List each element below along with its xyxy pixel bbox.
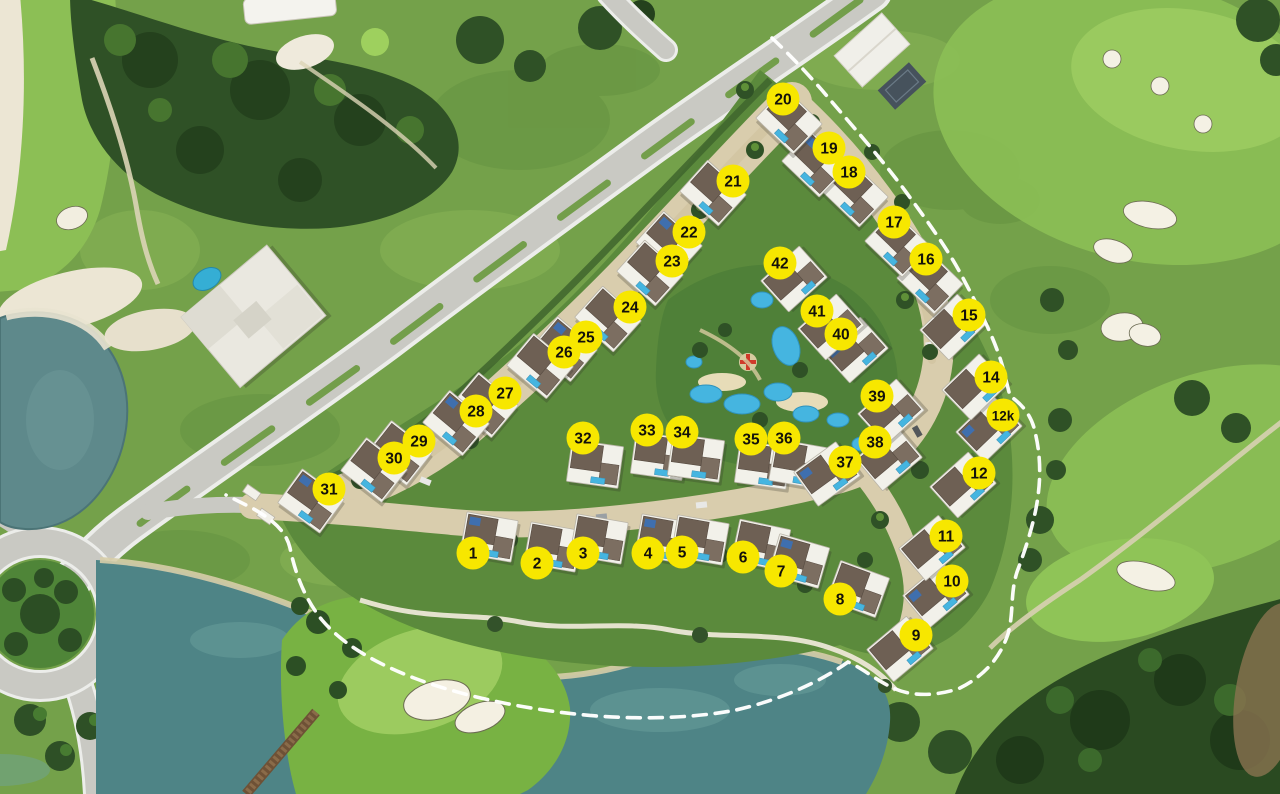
site-plan-stage: 12345678910111212k1415161718192021222324… (0, 0, 1280, 794)
lot-marker-27[interactable]: 27 (489, 377, 522, 410)
lot-marker-39[interactable]: 39 (861, 380, 894, 413)
lot-marker-2[interactable]: 2 (521, 547, 554, 580)
lot-marker-14[interactable]: 14 (975, 361, 1008, 394)
svg-text:32: 32 (574, 431, 591, 448)
svg-text:11: 11 (938, 529, 955, 546)
svg-text:6: 6 (739, 550, 748, 567)
svg-text:22: 22 (680, 225, 697, 242)
svg-text:34: 34 (673, 425, 691, 442)
svg-text:15: 15 (960, 308, 978, 325)
lot-marker-33[interactable]: 33 (631, 414, 664, 447)
svg-text:4: 4 (644, 546, 653, 563)
svg-text:12k: 12k (992, 409, 1015, 424)
svg-text:1: 1 (469, 546, 478, 563)
lot-marker-20[interactable]: 20 (767, 83, 800, 116)
lot-marker-37[interactable]: 37 (829, 446, 862, 479)
lot-marker-34[interactable]: 34 (666, 416, 699, 449)
lot-marker-12[interactable]: 12 (963, 457, 996, 490)
svg-text:33: 33 (638, 423, 656, 440)
svg-text:19: 19 (820, 141, 838, 158)
lot-marker-38[interactable]: 38 (859, 426, 892, 459)
svg-text:25: 25 (577, 330, 595, 347)
svg-text:31: 31 (320, 482, 338, 499)
svg-text:39: 39 (868, 389, 886, 406)
svg-text:7: 7 (777, 564, 786, 581)
svg-text:37: 37 (836, 455, 853, 472)
svg-text:23: 23 (663, 254, 681, 271)
lot-marker-6[interactable]: 6 (727, 541, 760, 574)
lot-marker-3[interactable]: 3 (567, 537, 600, 570)
svg-text:10: 10 (943, 574, 960, 591)
svg-text:24: 24 (621, 300, 639, 317)
lot-marker-7[interactable]: 7 (765, 555, 798, 588)
svg-text:29: 29 (410, 434, 428, 451)
svg-text:9: 9 (912, 628, 921, 645)
lot-marker-10[interactable]: 10 (936, 565, 969, 598)
svg-text:40: 40 (832, 327, 849, 344)
lot-marker-1[interactable]: 1 (457, 537, 490, 570)
lot-marker-28[interactable]: 28 (460, 395, 493, 428)
svg-text:27: 27 (496, 386, 513, 403)
lot-marker-5[interactable]: 5 (666, 536, 699, 569)
lot-marker-21[interactable]: 21 (717, 165, 750, 198)
lot-marker-36[interactable]: 36 (768, 422, 801, 455)
lot-marker-4[interactable]: 4 (632, 537, 665, 570)
svg-text:42: 42 (771, 256, 788, 273)
lot-marker-12k[interactable]: 12k (987, 399, 1020, 432)
svg-text:17: 17 (885, 215, 902, 232)
svg-text:8: 8 (836, 592, 845, 609)
lot-marker-31[interactable]: 31 (313, 473, 346, 506)
lot-marker-42[interactable]: 42 (764, 247, 797, 280)
svg-text:36: 36 (775, 431, 793, 448)
svg-text:35: 35 (742, 432, 760, 449)
svg-text:2: 2 (533, 556, 542, 573)
lot-marker-9[interactable]: 9 (900, 619, 933, 652)
lot-marker-35[interactable]: 35 (735, 423, 768, 456)
svg-text:21: 21 (724, 174, 742, 191)
svg-text:3: 3 (579, 546, 588, 563)
lot-marker-8[interactable]: 8 (824, 583, 857, 616)
lot-marker-24[interactable]: 24 (614, 291, 647, 324)
site-plan-svg: 12345678910111212k1415161718192021222324… (0, 0, 1280, 794)
svg-text:26: 26 (555, 345, 573, 362)
svg-text:20: 20 (774, 92, 791, 109)
lot-marker-40[interactable]: 40 (825, 318, 858, 351)
lot-marker-17[interactable]: 17 (878, 206, 911, 239)
svg-text:5: 5 (678, 545, 687, 562)
lot-marker-22[interactable]: 22 (673, 216, 706, 249)
svg-text:38: 38 (866, 435, 884, 452)
svg-text:41: 41 (808, 304, 826, 321)
svg-text:28: 28 (467, 404, 485, 421)
svg-text:14: 14 (982, 370, 1000, 387)
svg-text:18: 18 (840, 165, 858, 182)
lot-marker-16[interactable]: 16 (910, 243, 943, 276)
lot-marker-41[interactable]: 41 (801, 295, 834, 328)
lot-marker-19[interactable]: 19 (813, 132, 846, 165)
svg-text:30: 30 (385, 451, 402, 468)
lot-marker-23[interactable]: 23 (656, 245, 689, 278)
lot-marker-15[interactable]: 15 (953, 299, 986, 332)
svg-text:12: 12 (970, 466, 987, 483)
lot-marker-26[interactable]: 26 (548, 336, 581, 369)
lot-marker-11[interactable]: 11 (930, 520, 963, 553)
lot-marker-30[interactable]: 30 (378, 442, 411, 475)
lot-marker-32[interactable]: 32 (567, 422, 600, 455)
svg-text:16: 16 (917, 252, 935, 269)
